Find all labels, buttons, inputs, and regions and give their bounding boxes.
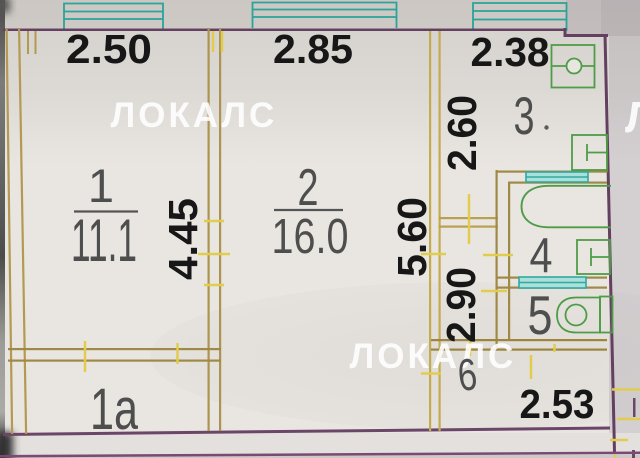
svg-text:2: 2	[298, 159, 319, 217]
svg-text:5.60: 5.60	[389, 197, 435, 277]
svg-text:11.1: 11.1	[71, 207, 137, 274]
svg-text:4.45: 4.45	[160, 198, 206, 280]
svg-text:2.50: 2.50	[66, 26, 152, 72]
svg-text:3: 3	[514, 87, 535, 146]
svg-text:2.85: 2.85	[273, 26, 353, 72]
svg-text:1a: 1a	[90, 377, 139, 442]
svg-text:Л: Л	[625, 93, 640, 142]
svg-text:2.38: 2.38	[471, 29, 550, 75]
svg-text:ЛОКАЛС: ЛОКАЛС	[111, 96, 278, 135]
svg-text:2.90: 2.90	[438, 267, 484, 343]
svg-text:2.53: 2.53	[520, 381, 595, 427]
svg-text:5: 5	[528, 284, 553, 346]
svg-text:1: 1	[88, 159, 114, 212]
svg-text:16.0: 16.0	[272, 210, 349, 264]
svg-text:2.60: 2.60	[439, 95, 485, 171]
svg-text:ЛОКАЛС: ЛОКАЛС	[350, 337, 517, 376]
svg-text:4: 4	[530, 229, 553, 283]
